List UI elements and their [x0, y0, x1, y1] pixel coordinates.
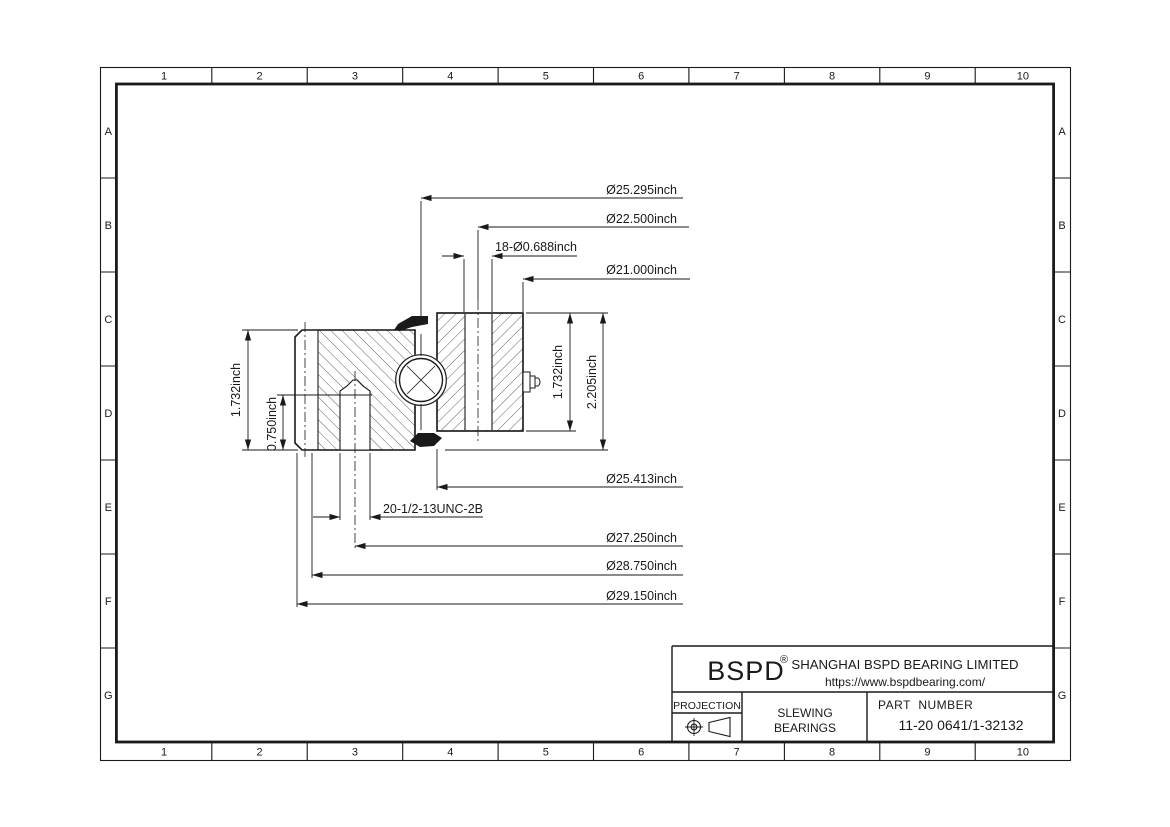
grid-row-labels-right: ABCDEFG: [1058, 126, 1067, 702]
grid-label: B: [105, 220, 112, 232]
grid-label: 8: [829, 71, 835, 83]
company-website: https://www.bspdbearing.com/: [825, 675, 986, 689]
grid-label: 10: [1017, 71, 1029, 83]
mount-hole: [465, 314, 492, 430]
grid-label: 10: [1017, 747, 1029, 759]
grid-row-labels-left: ABCDEFG: [104, 126, 113, 702]
grid-label: 5: [543, 747, 549, 759]
grid-label: 4: [447, 747, 453, 759]
title-block: BSPD ® SHANGHAI BSPD BEARING LIMITED htt…: [672, 646, 1054, 742]
grid-label: G: [104, 690, 113, 702]
first-angle-projection-icon: [685, 718, 730, 737]
grid-label: F: [1059, 596, 1066, 608]
grid-label: C: [104, 314, 112, 326]
grid-column-labels-top: 12345678910: [161, 71, 1029, 83]
grid-label: 2: [256, 71, 262, 83]
part-number-value: 11-20 0641/1-32132: [898, 717, 1023, 733]
engineering-drawing-canvas: 12345678910 12345678910 ABCDEFG ABCDEFG: [0, 0, 1170, 827]
dim-recess-diameter: Ø28.750inch: [606, 559, 677, 573]
dim-mount-holes: 18-Ø0.688inch: [495, 240, 577, 254]
grid-label: G: [1058, 690, 1067, 702]
grid-label: 1: [161, 71, 167, 83]
dim-overall-height: 2.205inch: [585, 355, 599, 409]
projection-label: PROJECTION: [673, 700, 741, 712]
grid-label: 6: [638, 747, 644, 759]
grid-label: 1: [161, 747, 167, 759]
grid-label: A: [105, 126, 113, 138]
grease-fitting-icon: [523, 372, 540, 392]
brand-logo: BSPD: [707, 656, 785, 686]
grid-label: 3: [352, 747, 358, 759]
grid-column-labels-bottom: 12345678910: [161, 747, 1029, 759]
dim-bore-diameter: Ø21.000inch: [606, 263, 677, 277]
drawing-sheet: 12345678910 12345678910 ABCDEFG ABCDEFG: [0, 0, 1170, 827]
registered-mark: ®: [780, 654, 788, 666]
grid-label: 8: [829, 747, 835, 759]
grid-label: 2: [256, 747, 262, 759]
grid-label: 7: [734, 71, 740, 83]
company-name: SHANGHAI BSPD BEARING LIMITED: [791, 657, 1018, 672]
dim-raceway-diameter: Ø25.295inch: [606, 183, 677, 197]
grid-label: B: [1058, 220, 1065, 232]
dim-thread-depth: 0.750inch: [265, 397, 279, 451]
dim-tapped-bolt-circle: Ø27.250inch: [606, 531, 677, 545]
dim-inner-ring-height: 1.732inch: [551, 345, 565, 399]
grid-label: E: [105, 502, 112, 514]
part-number-label: PART NUMBER: [878, 698, 973, 712]
grid-row-dividers: [101, 178, 1071, 648]
product-name-line2: BEARINGS: [774, 721, 836, 735]
grid-label: C: [1058, 314, 1066, 326]
grid-label: D: [104, 408, 112, 420]
grid-label: 9: [924, 747, 930, 759]
grid-label: D: [1058, 408, 1066, 420]
top-seal: [394, 316, 428, 331]
dim-mount-bolt-circle: Ø22.500inch: [606, 212, 677, 226]
grid-label: 3: [352, 71, 358, 83]
dim-outer-ring-height: 1.732inch: [229, 363, 243, 417]
dim-outside-diameter: Ø29.150inch: [606, 589, 677, 603]
product-name-line1: SLEWING: [777, 706, 832, 720]
grid-label: F: [105, 596, 112, 608]
grid-label: 4: [447, 71, 453, 83]
dim-inner-ring-od: Ø25.413inch: [606, 472, 677, 486]
dim-tapped-holes: 20-1/2-13UNC-2B: [383, 502, 483, 516]
grid-label: 7: [734, 747, 740, 759]
grid-label: A: [1058, 126, 1066, 138]
grid-label: E: [1058, 502, 1065, 514]
grid-label: 5: [543, 71, 549, 83]
grid-label: 9: [924, 71, 930, 83]
grid-label: 6: [638, 71, 644, 83]
